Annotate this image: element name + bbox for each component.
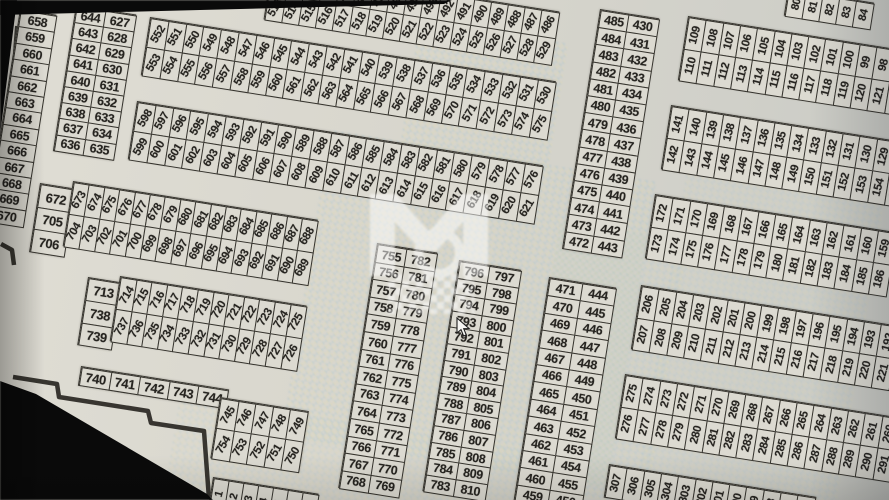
plot-number: 173 bbox=[649, 234, 665, 254]
plot-number: 101 bbox=[824, 46, 840, 66]
plot-number: 706 bbox=[38, 234, 61, 252]
plot-number: 740 bbox=[84, 370, 107, 388]
plot-number: 759 bbox=[370, 317, 392, 334]
plot-number: 117 bbox=[802, 75, 818, 95]
plot-number: 268 bbox=[744, 402, 760, 422]
plot-number: 264 bbox=[812, 412, 828, 432]
plot-number: 219 bbox=[841, 357, 857, 377]
plot-cell: 186 bbox=[868, 261, 889, 297]
plot-number: 200 bbox=[743, 310, 759, 330]
plot-number: 194 bbox=[845, 326, 861, 346]
plot-number: 215 bbox=[772, 346, 788, 366]
plot-number: 749 bbox=[288, 415, 308, 437]
plot-number: 152 bbox=[836, 172, 852, 192]
plot-number: 281 bbox=[705, 427, 721, 447]
plot-number: 764 bbox=[356, 404, 378, 421]
plot-number: 104 bbox=[773, 38, 789, 58]
plot-number: 204 bbox=[675, 299, 691, 319]
plot-number: 148 bbox=[768, 161, 784, 181]
plot-map[interactable]: 6586596606616626636646656666676686696706… bbox=[0, 0, 889, 500]
plot-block-strip-1-7: 1234567 bbox=[208, 477, 318, 500]
plot-number: 810 bbox=[460, 482, 482, 499]
plot-number: 713 bbox=[92, 283, 115, 301]
plot-number: 137 bbox=[739, 124, 755, 144]
plot-number: 769 bbox=[374, 478, 396, 495]
plot-number: 270 bbox=[710, 396, 726, 416]
plot-number: 121 bbox=[870, 86, 886, 106]
plot-number: 141 bbox=[670, 114, 686, 134]
plot-number: 114 bbox=[751, 67, 767, 87]
plot-number: 576 bbox=[522, 169, 542, 191]
plot-number: 110 bbox=[683, 56, 699, 76]
plot-number: 741 bbox=[113, 375, 136, 393]
plot-number: 206 bbox=[640, 294, 656, 314]
plot-number: 762 bbox=[361, 369, 383, 386]
plot-number: 302 bbox=[694, 486, 710, 500]
plot-number: 147 bbox=[751, 158, 767, 178]
plot-number: 275 bbox=[624, 383, 640, 403]
plot-number: 2 bbox=[228, 492, 241, 500]
plot-number: 181 bbox=[786, 255, 802, 275]
plot-number: 291 bbox=[876, 454, 889, 474]
plot-number: 766 bbox=[350, 439, 372, 456]
plot-number: 182 bbox=[803, 258, 819, 278]
plot-block-strip-80-84: 8081828384 bbox=[784, 0, 874, 29]
plot-number: 118 bbox=[819, 78, 835, 98]
plot-number: 273 bbox=[659, 388, 675, 408]
plot-number: 151 bbox=[819, 169, 835, 189]
plot-cell: 636 bbox=[54, 134, 87, 156]
plot-number: 456 bbox=[555, 493, 577, 500]
plot-number: 163 bbox=[808, 227, 824, 247]
plot-block-strip-159-186: 1721711701691681671661651641631621611601… bbox=[645, 194, 889, 296]
plot-number: 201 bbox=[726, 307, 742, 327]
plot-number: 162 bbox=[825, 230, 841, 250]
plot-number: 159 bbox=[877, 238, 889, 258]
plot-number: 300 bbox=[728, 492, 744, 500]
plot-number: 211 bbox=[704, 336, 720, 356]
plot-number: 529 bbox=[535, 40, 555, 62]
plot-number: 760 bbox=[367, 334, 389, 351]
plot-number: 214 bbox=[755, 344, 771, 364]
plot-number: 280 bbox=[688, 425, 704, 445]
plot-block-strip-97-122: 1091081071061051041031021011009998971101… bbox=[678, 16, 889, 116]
plot-number: 763 bbox=[359, 387, 381, 404]
plot-number: 99 bbox=[859, 55, 874, 70]
plot-number: 3 bbox=[243, 494, 256, 500]
plot-number: 777 bbox=[396, 339, 418, 356]
plot-cell: 769 bbox=[368, 475, 402, 499]
plot-number: 136 bbox=[756, 127, 772, 147]
plot-number: 212 bbox=[721, 338, 737, 358]
plot-cell: 575 bbox=[528, 108, 552, 141]
plot-number: 768 bbox=[345, 473, 367, 490]
plot-number: 290 bbox=[859, 452, 875, 472]
plot-number: 186 bbox=[872, 269, 888, 289]
plot-block-pair-471-444: 4714444704454694464684474674484664494654… bbox=[511, 277, 617, 500]
plot-block-strip-745-754: 745746747748749754753752751750 bbox=[210, 397, 309, 472]
screen-photo: 6586596606616626636646656666676686696706… bbox=[0, 0, 889, 500]
plot-number: 738 bbox=[89, 306, 112, 324]
plot-number: 107 bbox=[722, 30, 738, 50]
plot-number: 178 bbox=[735, 247, 751, 267]
plot-cell: 726 bbox=[280, 336, 302, 372]
plot-number: 307 bbox=[608, 473, 624, 493]
plot-number: 263 bbox=[829, 415, 845, 435]
plot-number: 98 bbox=[876, 57, 889, 72]
plot-number: 167 bbox=[740, 216, 756, 236]
plot-number: 179 bbox=[752, 250, 768, 270]
plot-number: 739 bbox=[85, 328, 108, 346]
plot-number: 783 bbox=[429, 477, 451, 494]
plot-number: 266 bbox=[778, 407, 794, 427]
plot-number: 265 bbox=[795, 410, 811, 430]
plot-number: 775 bbox=[390, 374, 412, 391]
plot-number: 782 bbox=[410, 252, 432, 269]
plot-number: 208 bbox=[653, 327, 669, 347]
plot-number: 112 bbox=[717, 61, 733, 81]
plot-number: 198 bbox=[777, 315, 793, 335]
plot-number: 443 bbox=[597, 239, 619, 256]
plot-number: 756 bbox=[378, 265, 400, 282]
plot-number: 111 bbox=[700, 59, 716, 78]
plot-number: 635 bbox=[89, 141, 111, 158]
plot-number: 277 bbox=[637, 416, 653, 436]
plot-number: 83 bbox=[839, 6, 854, 20]
plot-number: 767 bbox=[348, 456, 370, 473]
plot-number: 115 bbox=[768, 70, 784, 90]
plot-number: 725 bbox=[286, 311, 306, 333]
plot-cell: 621 bbox=[515, 192, 539, 225]
plot-cell: 749 bbox=[285, 409, 309, 443]
plot-number: 164 bbox=[791, 224, 807, 244]
plot-number: 195 bbox=[828, 323, 844, 343]
plot-number: 175 bbox=[684, 239, 700, 259]
plot-number: 153 bbox=[853, 175, 869, 195]
plot-number: 202 bbox=[709, 304, 725, 324]
plot-block-strip-192-221: 2062052042032022012001991981971961951941… bbox=[631, 285, 889, 390]
plot-number: 271 bbox=[693, 393, 709, 413]
plot-number: 285 bbox=[773, 438, 789, 458]
plot-cell: 783 bbox=[423, 474, 457, 497]
plot-number: 119 bbox=[836, 80, 852, 100]
plot-number: 774 bbox=[388, 391, 410, 408]
plot-number: 287 bbox=[807, 444, 823, 464]
plot-number: 272 bbox=[676, 391, 692, 411]
plot-number: 197 bbox=[794, 318, 810, 338]
plot-number: 636 bbox=[59, 137, 81, 154]
plot-number: 81 bbox=[805, 0, 820, 14]
plot-number: 80 bbox=[789, 0, 804, 12]
plot-number: 1 bbox=[213, 490, 226, 499]
plot-cell: 84 bbox=[852, 1, 874, 30]
plot-number: 160 bbox=[859, 235, 875, 255]
plot-block-pair-755-782: 7557827567817577807587797597787607777617… bbox=[338, 243, 437, 498]
plot-number: 171 bbox=[671, 205, 687, 225]
plot-block-strip-673-704: 6736746756766776786796806816826836846856… bbox=[63, 181, 319, 285]
plot-number: 726 bbox=[281, 343, 301, 365]
plot-number: 771 bbox=[379, 443, 401, 460]
plot-number: 750 bbox=[283, 445, 303, 467]
plot-number: 743 bbox=[172, 384, 195, 402]
plot-number: 138 bbox=[722, 122, 738, 142]
plot-number: 304 bbox=[660, 481, 676, 500]
plot-number: 133 bbox=[807, 135, 823, 155]
plot-number: 184 bbox=[837, 264, 853, 284]
plot-number: 131 bbox=[841, 141, 857, 161]
plot-number: 303 bbox=[677, 483, 693, 500]
plot-number: 217 bbox=[806, 352, 822, 372]
plot-number: 705 bbox=[41, 212, 64, 230]
plot-number: 135 bbox=[773, 130, 789, 150]
plot-number: 765 bbox=[353, 421, 375, 438]
plot-number: 207 bbox=[635, 325, 651, 345]
plot-number: 172 bbox=[654, 203, 670, 223]
plot-number: 755 bbox=[381, 248, 403, 265]
plot-number: 306 bbox=[625, 475, 641, 495]
plot-number: 689 bbox=[293, 257, 313, 279]
plot-number: 776 bbox=[393, 356, 415, 373]
plot-number: 143 bbox=[683, 147, 699, 167]
plot-number: 288 bbox=[825, 446, 841, 466]
plot-number: 174 bbox=[667, 236, 683, 256]
plot-cell: 725 bbox=[285, 304, 307, 340]
plot-number: 113 bbox=[734, 64, 750, 84]
plot-number: 575 bbox=[531, 113, 551, 135]
plot-number: 82 bbox=[822, 3, 837, 17]
plot-number: 180 bbox=[769, 253, 785, 273]
plot-number: 170 bbox=[689, 208, 705, 228]
plot-number: 150 bbox=[802, 166, 818, 186]
plot-number: 278 bbox=[654, 419, 670, 439]
plot-number: 132 bbox=[824, 138, 840, 158]
plot-block-pair-796-810: 7967977957987947997938007928017918027908… bbox=[422, 260, 521, 500]
plot-number: 142 bbox=[665, 145, 681, 165]
plot-number: 103 bbox=[790, 41, 806, 61]
plot-number: 779 bbox=[401, 304, 423, 321]
plot-cell: 750 bbox=[281, 439, 305, 473]
plot-number: 216 bbox=[789, 349, 805, 369]
plot-number: 289 bbox=[842, 449, 858, 469]
plot-number: 279 bbox=[671, 422, 687, 442]
plot-number: 100 bbox=[841, 49, 857, 69]
plot-cell: 529 bbox=[533, 35, 556, 65]
plot-number: 742 bbox=[143, 379, 166, 397]
plot-number: 274 bbox=[641, 385, 657, 405]
plot-number: 109 bbox=[687, 25, 703, 45]
plot-cell: 635 bbox=[82, 139, 116, 161]
plot-number: 688 bbox=[298, 225, 318, 247]
plot-number: 220 bbox=[858, 360, 874, 380]
plot-block-strip-296-307: 307306305304303302301300299298297296 bbox=[604, 464, 816, 500]
plot-number: 770 bbox=[377, 461, 399, 478]
plot-number: 778 bbox=[399, 322, 421, 339]
plot-number: 261 bbox=[864, 421, 880, 441]
plot-number: 267 bbox=[761, 404, 777, 424]
plot-number: 105 bbox=[756, 35, 772, 55]
plot-number: 459 bbox=[522, 488, 544, 500]
plot-number: 772 bbox=[382, 426, 404, 443]
plot-cell: 688 bbox=[297, 218, 319, 254]
plot-number: 144 bbox=[700, 150, 716, 170]
plot-number: 672 bbox=[45, 190, 68, 208]
plot-number: 305 bbox=[643, 478, 659, 498]
plot-number: 486 bbox=[539, 14, 559, 36]
plot-number: 269 bbox=[727, 399, 743, 419]
plot-number: 199 bbox=[760, 313, 776, 333]
plot-number: 120 bbox=[853, 83, 869, 103]
plot-number: 282 bbox=[722, 430, 738, 450]
plot-number: 196 bbox=[811, 321, 827, 341]
plot-number: 116 bbox=[785, 72, 801, 92]
plot-number: 176 bbox=[701, 242, 717, 262]
plot-number: 286 bbox=[790, 441, 806, 461]
plot-block-pair-485-430: 4854304844314834324824334814344804354794… bbox=[562, 9, 659, 258]
plot-number: 213 bbox=[738, 341, 754, 361]
plot-number: 773 bbox=[385, 409, 407, 426]
plot-block-strip-714-737: 7147157167177187197207217227237247257377… bbox=[110, 276, 307, 371]
plot-number: 299 bbox=[745, 494, 761, 500]
plot-number: 276 bbox=[619, 414, 635, 434]
plot-number: 260 bbox=[881, 423, 889, 443]
plot-number: 472 bbox=[568, 234, 590, 251]
plot-number: 154 bbox=[871, 177, 887, 197]
plot-number: 780 bbox=[404, 287, 426, 304]
plot-number: 139 bbox=[705, 119, 721, 139]
plot-number: 301 bbox=[711, 489, 727, 500]
plot-block-row-740-744: 740741742743744 bbox=[78, 366, 229, 409]
plot-number: 283 bbox=[739, 433, 755, 453]
plot-number: 209 bbox=[670, 330, 686, 350]
plot-number: 130 bbox=[858, 143, 874, 163]
plot-number: 205 bbox=[657, 296, 673, 316]
plot-number: 134 bbox=[790, 133, 806, 153]
plot-number: 165 bbox=[774, 222, 790, 242]
plot-number: 145 bbox=[717, 153, 733, 173]
plot-number: 161 bbox=[842, 232, 858, 252]
plot-number: 621 bbox=[518, 197, 538, 219]
plot-number: 149 bbox=[785, 164, 801, 184]
plot-number: 192 bbox=[880, 332, 889, 352]
plot-block-strip-260-291: 2752742732722712702692682672662652642632… bbox=[615, 374, 889, 482]
plot-number: 530 bbox=[535, 85, 555, 107]
plot-number: 108 bbox=[704, 27, 720, 47]
plot-number: 262 bbox=[847, 418, 863, 438]
plot-number: 185 bbox=[855, 266, 871, 286]
plot-number: 210 bbox=[687, 333, 703, 353]
plot-number: 781 bbox=[407, 269, 429, 286]
plot-number: 761 bbox=[364, 352, 386, 369]
plot-number: 106 bbox=[739, 33, 755, 53]
plot-number: 129 bbox=[875, 146, 889, 166]
plot-number: 177 bbox=[718, 245, 734, 265]
plot-number: 166 bbox=[757, 219, 773, 239]
plot-number: 218 bbox=[823, 355, 839, 375]
plot-cell: 443 bbox=[591, 235, 625, 258]
plot-number: 169 bbox=[706, 211, 722, 231]
plot-number: 670 bbox=[0, 208, 17, 225]
plot-number: 146 bbox=[734, 156, 750, 176]
plot-number: 284 bbox=[756, 435, 772, 455]
plot-number: 221 bbox=[875, 363, 889, 383]
plot-number: 193 bbox=[863, 329, 879, 349]
plot-block-pair-644-627: 6446276436286426296416306406316396326386… bbox=[53, 5, 136, 161]
plot-number: 757 bbox=[375, 282, 397, 299]
plot-number: 168 bbox=[723, 213, 739, 233]
plot-number: 84 bbox=[856, 8, 871, 22]
plot-number: 758 bbox=[372, 300, 394, 317]
plot-block-strip-128-155: 1411401391381371361351341331321311301291… bbox=[661, 105, 889, 207]
plot-number: 203 bbox=[692, 302, 708, 322]
plot-number: 140 bbox=[687, 116, 703, 136]
plot-number: 102 bbox=[807, 44, 823, 64]
plot-number: 183 bbox=[820, 261, 836, 281]
plot-cell: 689 bbox=[292, 250, 314, 286]
